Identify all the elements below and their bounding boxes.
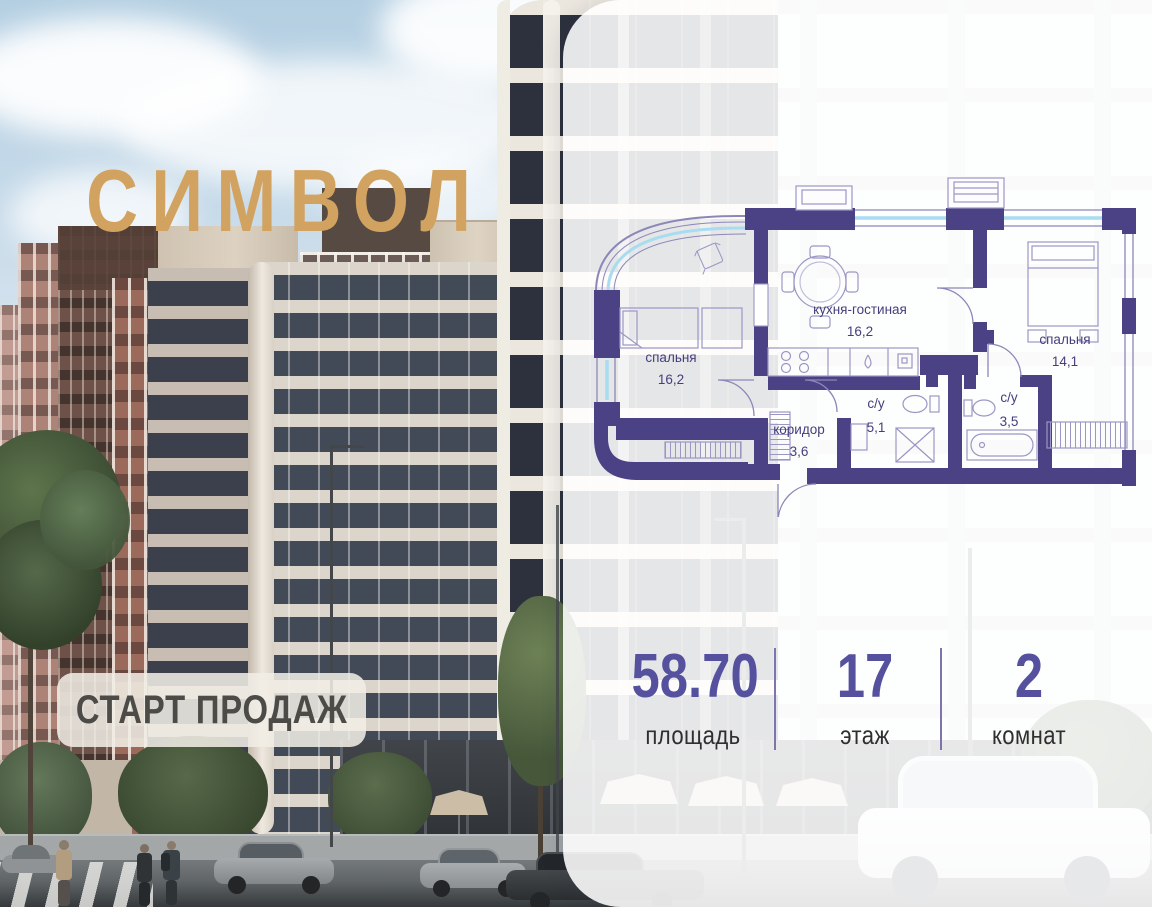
tree-canopy <box>40 470 130 570</box>
sales-start-label: СТАРТ ПРОДАЖ <box>76 688 348 733</box>
room-area: 16,2 <box>847 324 873 339</box>
stat-area: 58.70 площадь <box>618 646 768 751</box>
stat-divider <box>774 648 776 750</box>
room-name: кухня-гостиная <box>813 302 907 317</box>
stat-area-value: 58.70 <box>632 646 755 708</box>
room-name: с/у <box>1000 390 1018 405</box>
room-area: 14,1 <box>1052 354 1078 369</box>
room-name: с/у <box>867 396 885 411</box>
bathtub-symbol <box>967 430 1037 460</box>
bed-symbol <box>620 308 698 348</box>
lamp-post <box>330 445 333 847</box>
stat-divider <box>940 648 942 750</box>
kitchen-counter-symbol <box>768 348 918 376</box>
room-area: 3,5 <box>1000 414 1019 429</box>
balcony-glazing <box>594 216 746 293</box>
bed-symbol <box>1028 242 1098 342</box>
brand-logo: СИМВОЛ <box>86 150 484 252</box>
toilet-symbol <box>964 400 995 416</box>
street-tree <box>328 752 432 844</box>
wall-niche <box>754 284 768 326</box>
stat-rooms-value: 2 <box>968 646 1091 708</box>
lamp-post <box>556 505 559 861</box>
ac-unit <box>796 178 1004 210</box>
listing-card: СИМВОЛ СТАРТ ПРОДАЖ <box>0 0 1152 907</box>
desk-symbol <box>702 308 742 348</box>
stat-area-label: площадь <box>629 720 757 751</box>
stat-floor: 17 этаж <box>790 646 940 751</box>
stat-floor-value: 17 <box>804 646 927 708</box>
stat-rooms-label: комнат <box>965 720 1093 751</box>
floor-plan: спальня 16,2 кухня-гостиная 16,2 спальня… <box>588 172 1148 517</box>
room-name: коридор <box>773 422 825 437</box>
pedestrian <box>134 844 156 906</box>
sink-symbol <box>851 424 867 450</box>
tree-trunk <box>28 620 33 855</box>
pedestrian <box>52 840 76 906</box>
washing-machine-symbol <box>896 428 934 462</box>
lamp-arm <box>330 445 364 448</box>
stat-floor-label: этаж <box>801 720 929 751</box>
main-building-corner <box>248 262 274 834</box>
room-name: спальня <box>1039 332 1090 347</box>
toilet-symbol <box>903 396 939 413</box>
room-area: 3,6 <box>790 444 809 459</box>
stat-rooms: 2 комнат <box>954 646 1104 751</box>
room-area: 16,2 <box>658 372 684 387</box>
room-area: 5,1 <box>867 420 886 435</box>
sales-start-badge: СТАРТ ПРОДАЖ <box>57 673 366 747</box>
pedestrian <box>160 841 184 905</box>
room-name: спальня <box>645 350 696 365</box>
street-tree <box>118 736 268 850</box>
silver-sedan <box>214 842 334 898</box>
